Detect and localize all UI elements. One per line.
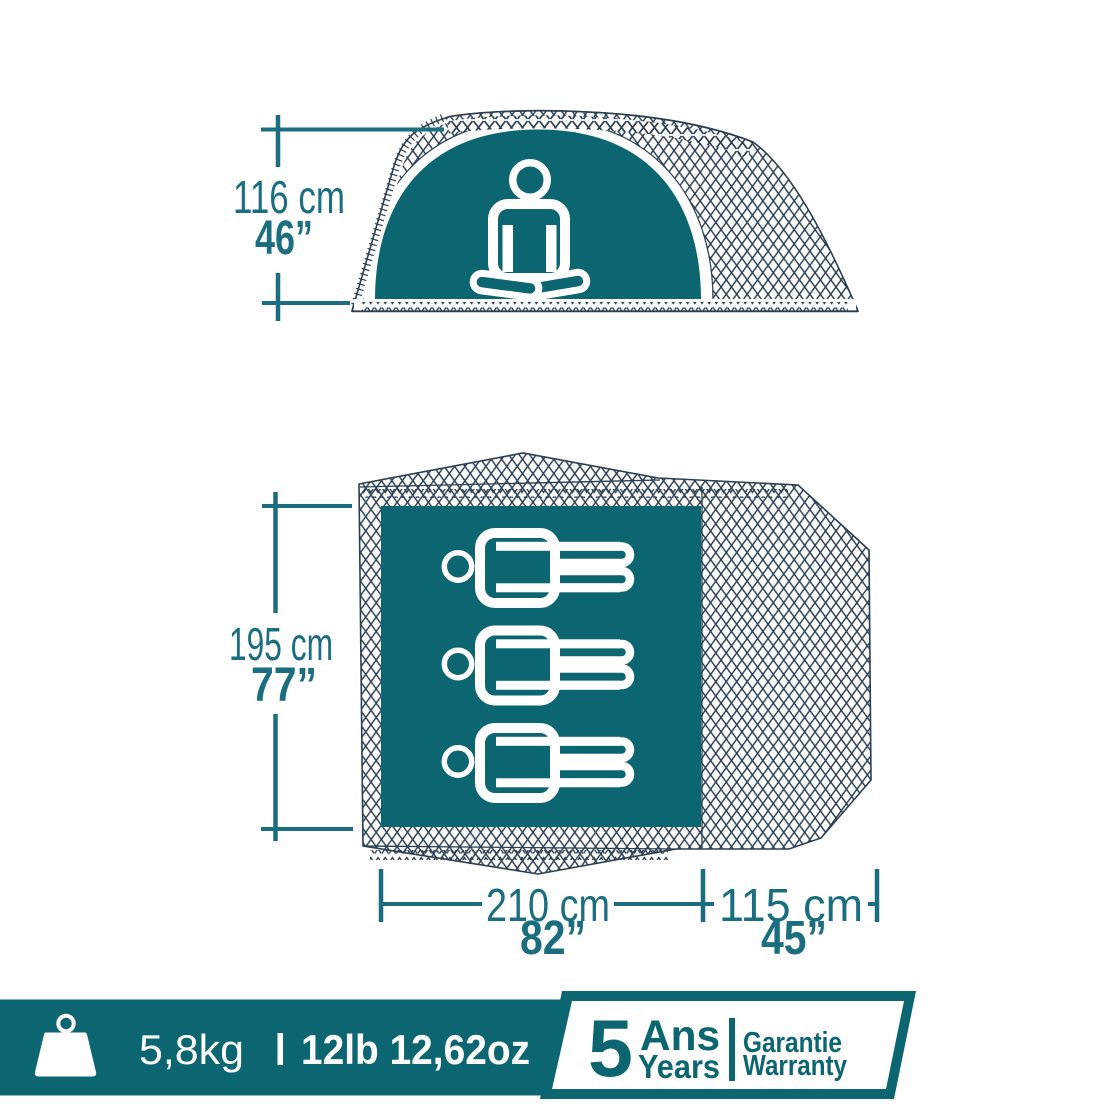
svg-text:12lb 12,62oz: 12lb 12,62oz xyxy=(301,1026,530,1073)
svg-text:77”: 77” xyxy=(251,659,317,712)
svg-text:45”: 45” xyxy=(761,912,827,965)
svg-text:46”: 46” xyxy=(255,212,313,265)
svg-text:Warranty: Warranty xyxy=(743,1050,847,1082)
svg-text:Years: Years xyxy=(638,1048,720,1085)
svg-text:82”: 82” xyxy=(520,912,586,965)
svg-text:5,8kg: 5,8kg xyxy=(139,1026,244,1073)
svg-text:5: 5 xyxy=(588,1004,633,1094)
